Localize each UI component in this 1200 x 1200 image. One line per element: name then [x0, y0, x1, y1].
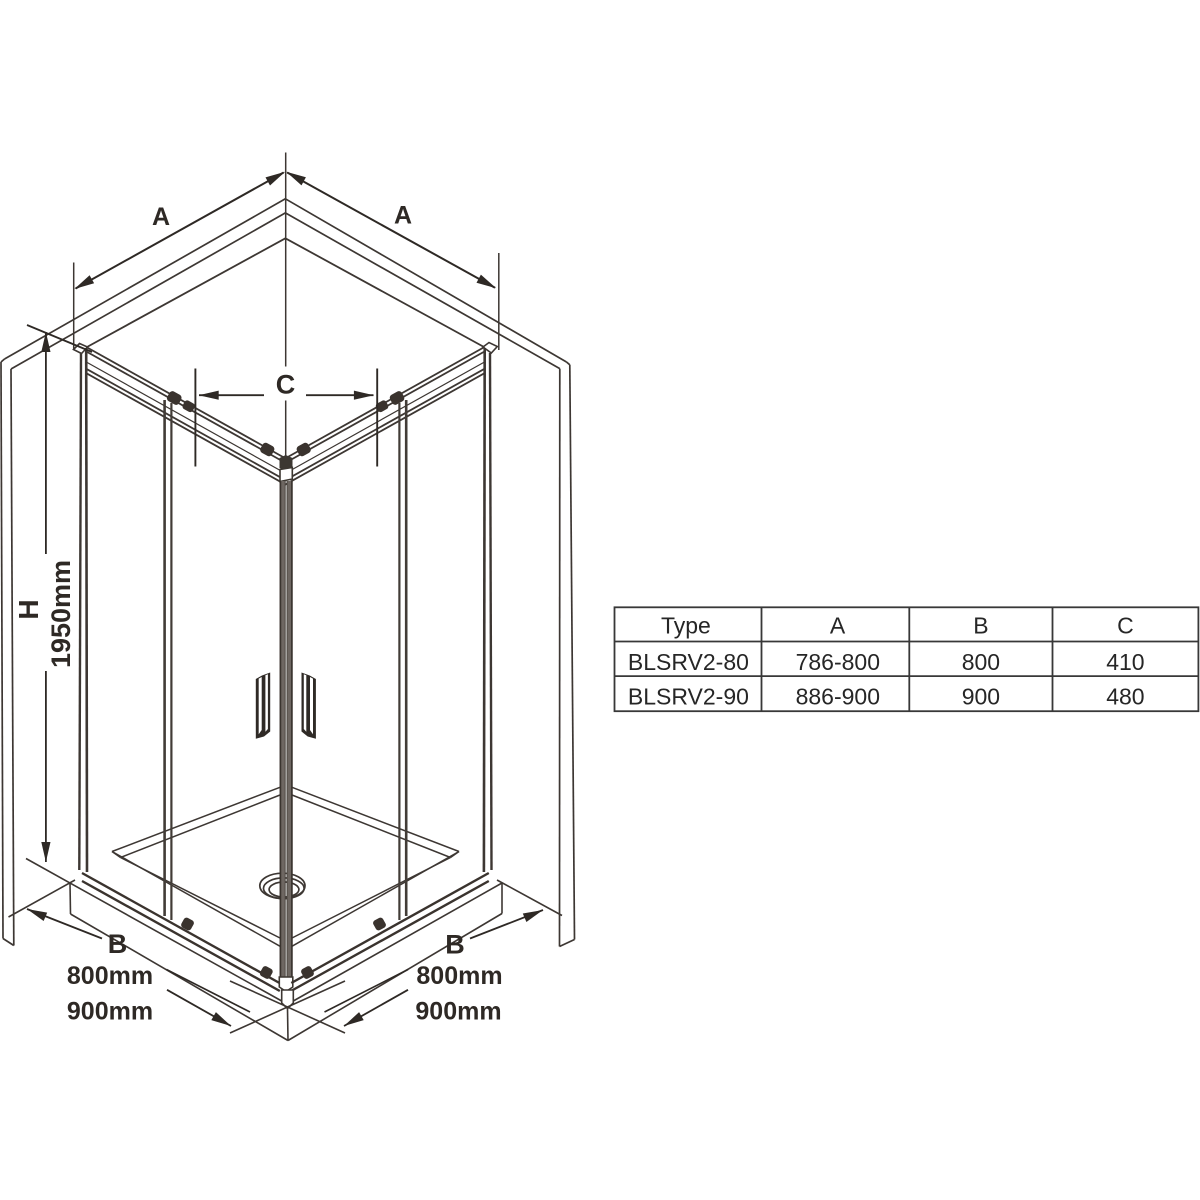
- svg-text:C: C: [1117, 612, 1134, 638]
- svg-text:Type: Type: [661, 612, 711, 638]
- svg-text:1950mm: 1950mm: [46, 560, 76, 668]
- svg-text:C: C: [276, 370, 296, 400]
- svg-text:BLSRV2-80: BLSRV2-80: [628, 649, 749, 675]
- svg-text:B: B: [445, 930, 465, 960]
- svg-text:900mm: 900mm: [67, 998, 153, 1026]
- svg-text:800mm: 800mm: [67, 962, 153, 990]
- svg-text:B: B: [973, 612, 988, 638]
- svg-text:900mm: 900mm: [415, 998, 501, 1026]
- svg-text:B: B: [108, 929, 128, 959]
- svg-text:410: 410: [1106, 649, 1144, 675]
- svg-text:480: 480: [1106, 683, 1144, 709]
- svg-text:H: H: [13, 599, 44, 619]
- svg-text:900: 900: [962, 683, 1000, 709]
- svg-text:BLSRV2-90: BLSRV2-90: [628, 683, 749, 709]
- svg-text:800: 800: [962, 649, 1000, 675]
- svg-text:A: A: [394, 202, 412, 230]
- svg-text:886-900: 886-900: [796, 683, 880, 709]
- svg-text:A: A: [830, 612, 846, 638]
- svg-text:786-800: 786-800: [796, 649, 880, 675]
- svg-text:A: A: [152, 203, 170, 231]
- svg-text:800mm: 800mm: [416, 962, 502, 990]
